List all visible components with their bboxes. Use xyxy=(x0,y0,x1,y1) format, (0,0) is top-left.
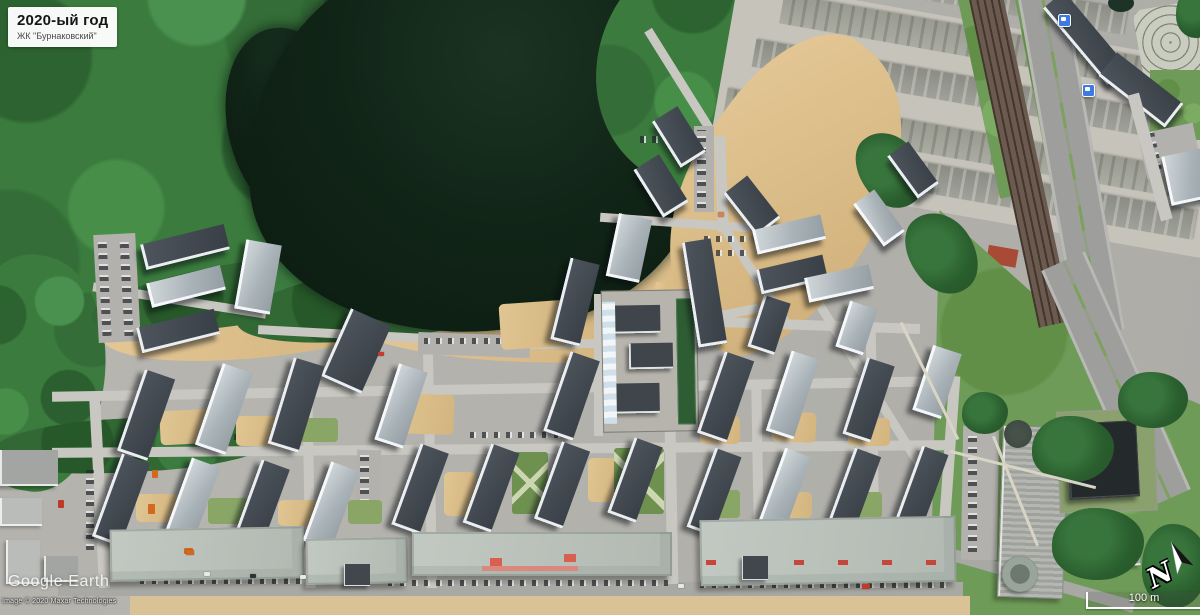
parked-cars xyxy=(86,470,94,550)
kiosk xyxy=(742,556,768,580)
school-building xyxy=(629,343,673,370)
painted-walk xyxy=(482,566,578,571)
scale-label: 100 m xyxy=(1129,592,1160,604)
kiosk xyxy=(344,564,370,586)
orange-truck xyxy=(148,504,155,514)
sand-strip xyxy=(130,596,970,615)
trees xyxy=(962,392,1008,434)
car xyxy=(250,574,256,578)
entrance-canopy xyxy=(564,554,576,562)
car xyxy=(678,584,684,588)
parked-cars xyxy=(388,580,668,586)
car xyxy=(718,212,724,217)
car xyxy=(862,584,870,589)
lawn xyxy=(348,500,382,524)
building xyxy=(391,443,449,534)
car xyxy=(204,572,210,576)
map-canvas[interactable]: 2020-ый год ЖК "Бурнаковский" Google Ear… xyxy=(0,0,1200,615)
mall-roof xyxy=(699,516,956,586)
warehouse xyxy=(0,450,58,486)
year-label: 2020-ый год xyxy=(17,12,108,29)
car xyxy=(300,575,306,579)
car xyxy=(186,550,194,555)
parked-cars xyxy=(968,432,977,552)
red-truck xyxy=(58,500,64,508)
entrance-canopy xyxy=(490,558,502,566)
warehouse xyxy=(0,498,42,526)
caption-box: 2020-ый год ЖК "Бурнаковский" xyxy=(8,7,117,47)
scale-bar: 100 m xyxy=(1086,592,1200,609)
transit-stop-icon[interactable] xyxy=(1058,14,1071,27)
building xyxy=(697,351,754,442)
trees xyxy=(1052,508,1144,580)
trees xyxy=(1032,416,1114,482)
trees xyxy=(1118,372,1188,428)
garage-round-tower xyxy=(1002,556,1038,592)
transit-stop-icon[interactable] xyxy=(1082,84,1095,97)
school-building xyxy=(613,383,660,414)
school-compound xyxy=(601,289,699,433)
complex-label: ЖК "Бурнаковский" xyxy=(17,32,108,41)
google-earth-watermark: Google Earth xyxy=(8,573,109,591)
parked-cars xyxy=(470,432,560,438)
imagery-copyright: Image © 2020 Maxar Technologies xyxy=(2,598,116,605)
building xyxy=(543,351,600,441)
school-building xyxy=(612,305,660,334)
parking-lot xyxy=(961,426,999,561)
garage-round-tower xyxy=(1004,420,1032,448)
shelter-row xyxy=(602,302,617,424)
car xyxy=(378,352,384,356)
orange-truck xyxy=(152,470,158,478)
